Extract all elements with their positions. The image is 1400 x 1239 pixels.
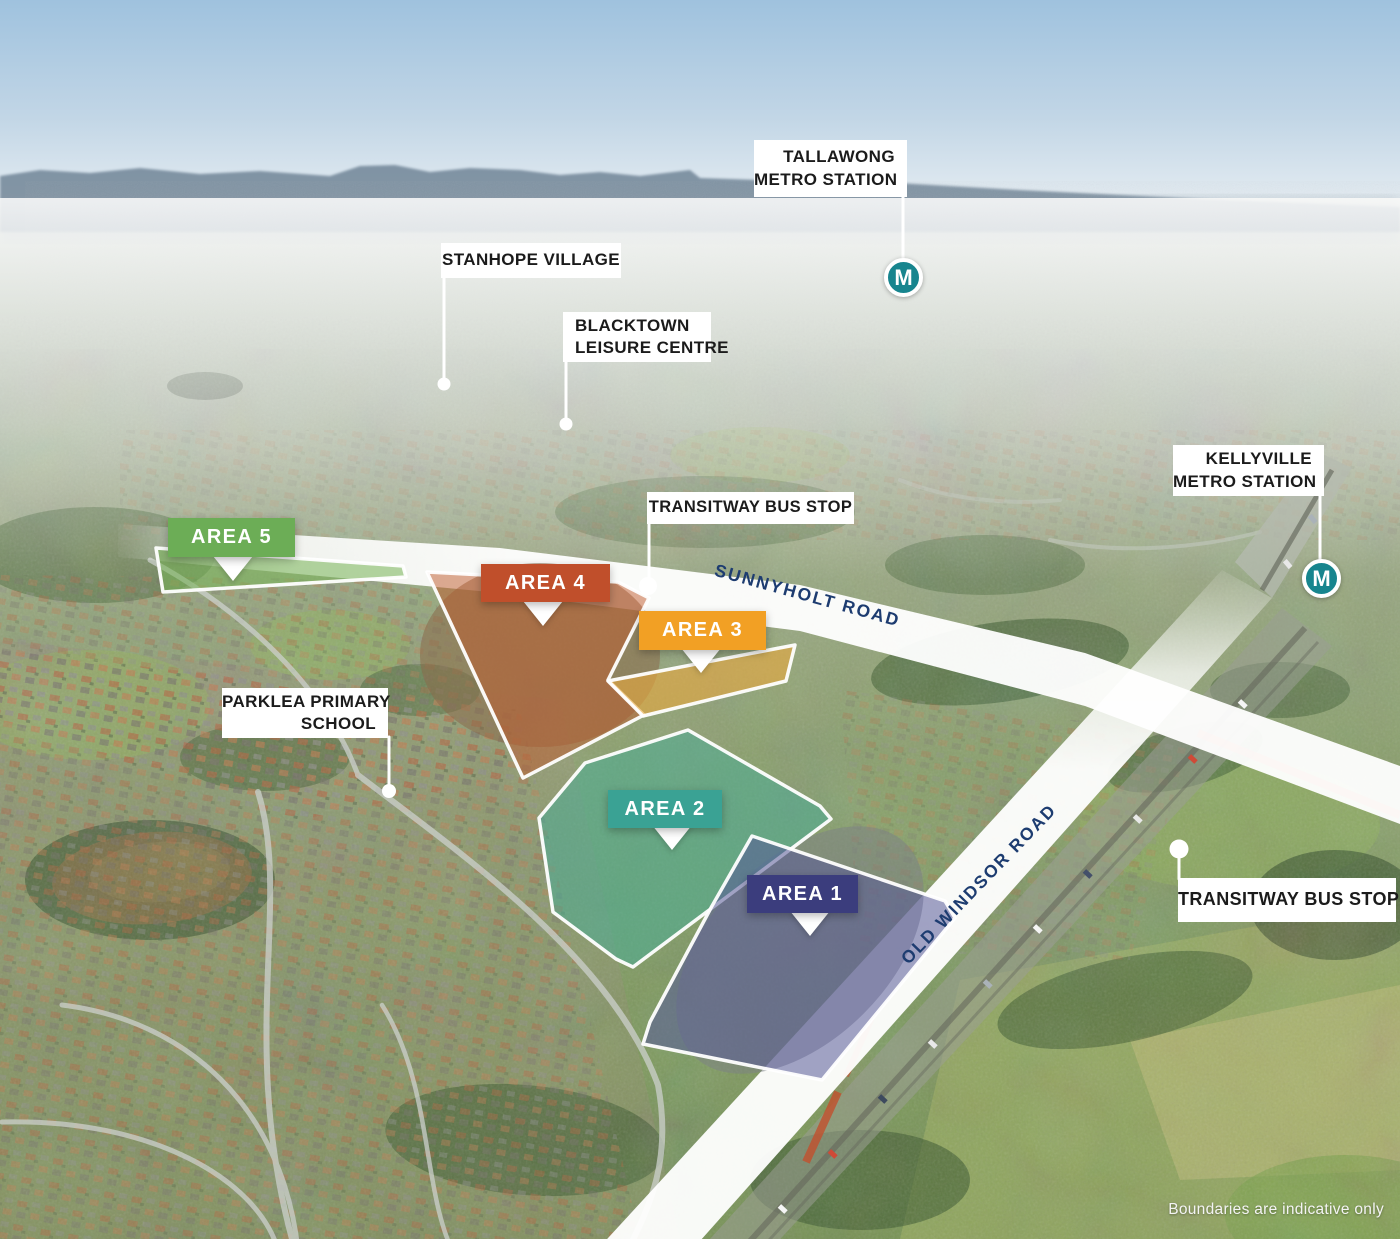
area-5-pointer bbox=[213, 556, 253, 581]
stanhope-village-label: STANHOPE VILLAGE bbox=[441, 243, 621, 278]
label-line: METRO STATION bbox=[754, 169, 895, 191]
label-line: STANHOPE VILLAGE bbox=[441, 249, 621, 271]
tallawong-metro-icon: M bbox=[884, 258, 923, 297]
transitway-old-windsor-marker-dot bbox=[1170, 840, 1189, 859]
area-2-pointer bbox=[652, 825, 692, 850]
tallawong-metro-label: TALLAWONG METRO STATION bbox=[754, 140, 907, 197]
boundaries-disclaimer: Boundaries are indicative only bbox=[1168, 1201, 1384, 1219]
area-1-pointer bbox=[790, 911, 830, 936]
area-1-badge: AREA 1 bbox=[747, 875, 858, 913]
parklea-marker-dot bbox=[382, 784, 396, 798]
area-5-badge: AREA 5 bbox=[168, 518, 295, 557]
transitway-bus-stop-sunnyholt-label: TRANSITWAY BUS STOP bbox=[647, 492, 854, 524]
area-3-badge: AREA 3 bbox=[639, 611, 766, 650]
aerial-map: SUNNYHOLT ROAD OLD WINDSOR ROAD TALLAWON… bbox=[0, 0, 1400, 1239]
parklea-primary-school-label: PARKLEA PRIMARY SCHOOL bbox=[222, 688, 388, 738]
label-line: PARKLEA PRIMARY bbox=[222, 691, 376, 713]
transitway-bus-stop-old-windsor-label: TRANSITWAY BUS STOP bbox=[1178, 878, 1396, 922]
kellyville-metro-icon: M bbox=[1302, 559, 1341, 598]
label-line: TALLAWONG bbox=[754, 146, 895, 168]
blacktown-marker-dot bbox=[560, 418, 573, 431]
blacktown-leisure-centre-label: BLACKTOWN LEISURE CENTRE bbox=[563, 312, 711, 362]
label-line: KELLYVILLE bbox=[1173, 448, 1312, 470]
label-line: METRO STATION bbox=[1173, 471, 1312, 493]
area-4-badge: AREA 4 bbox=[481, 564, 610, 602]
kellyville-metro-label: KELLYVILLE METRO STATION bbox=[1173, 445, 1324, 496]
label-line: TRANSITWAY BUS STOP bbox=[647, 497, 854, 519]
label-line: BLACKTOWN bbox=[575, 315, 711, 337]
label-line: SCHOOL bbox=[222, 713, 376, 735]
label-line: TRANSITWAY BUS STOP bbox=[1178, 888, 1396, 912]
stanhope-marker-dot bbox=[438, 378, 451, 391]
label-line: LEISURE CENTRE bbox=[575, 337, 711, 359]
area-2-badge: AREA 2 bbox=[608, 790, 722, 828]
area-3-pointer bbox=[681, 648, 721, 673]
transitway-sunnyholt-marker-dot bbox=[639, 577, 657, 595]
area-4-pointer bbox=[523, 601, 563, 626]
